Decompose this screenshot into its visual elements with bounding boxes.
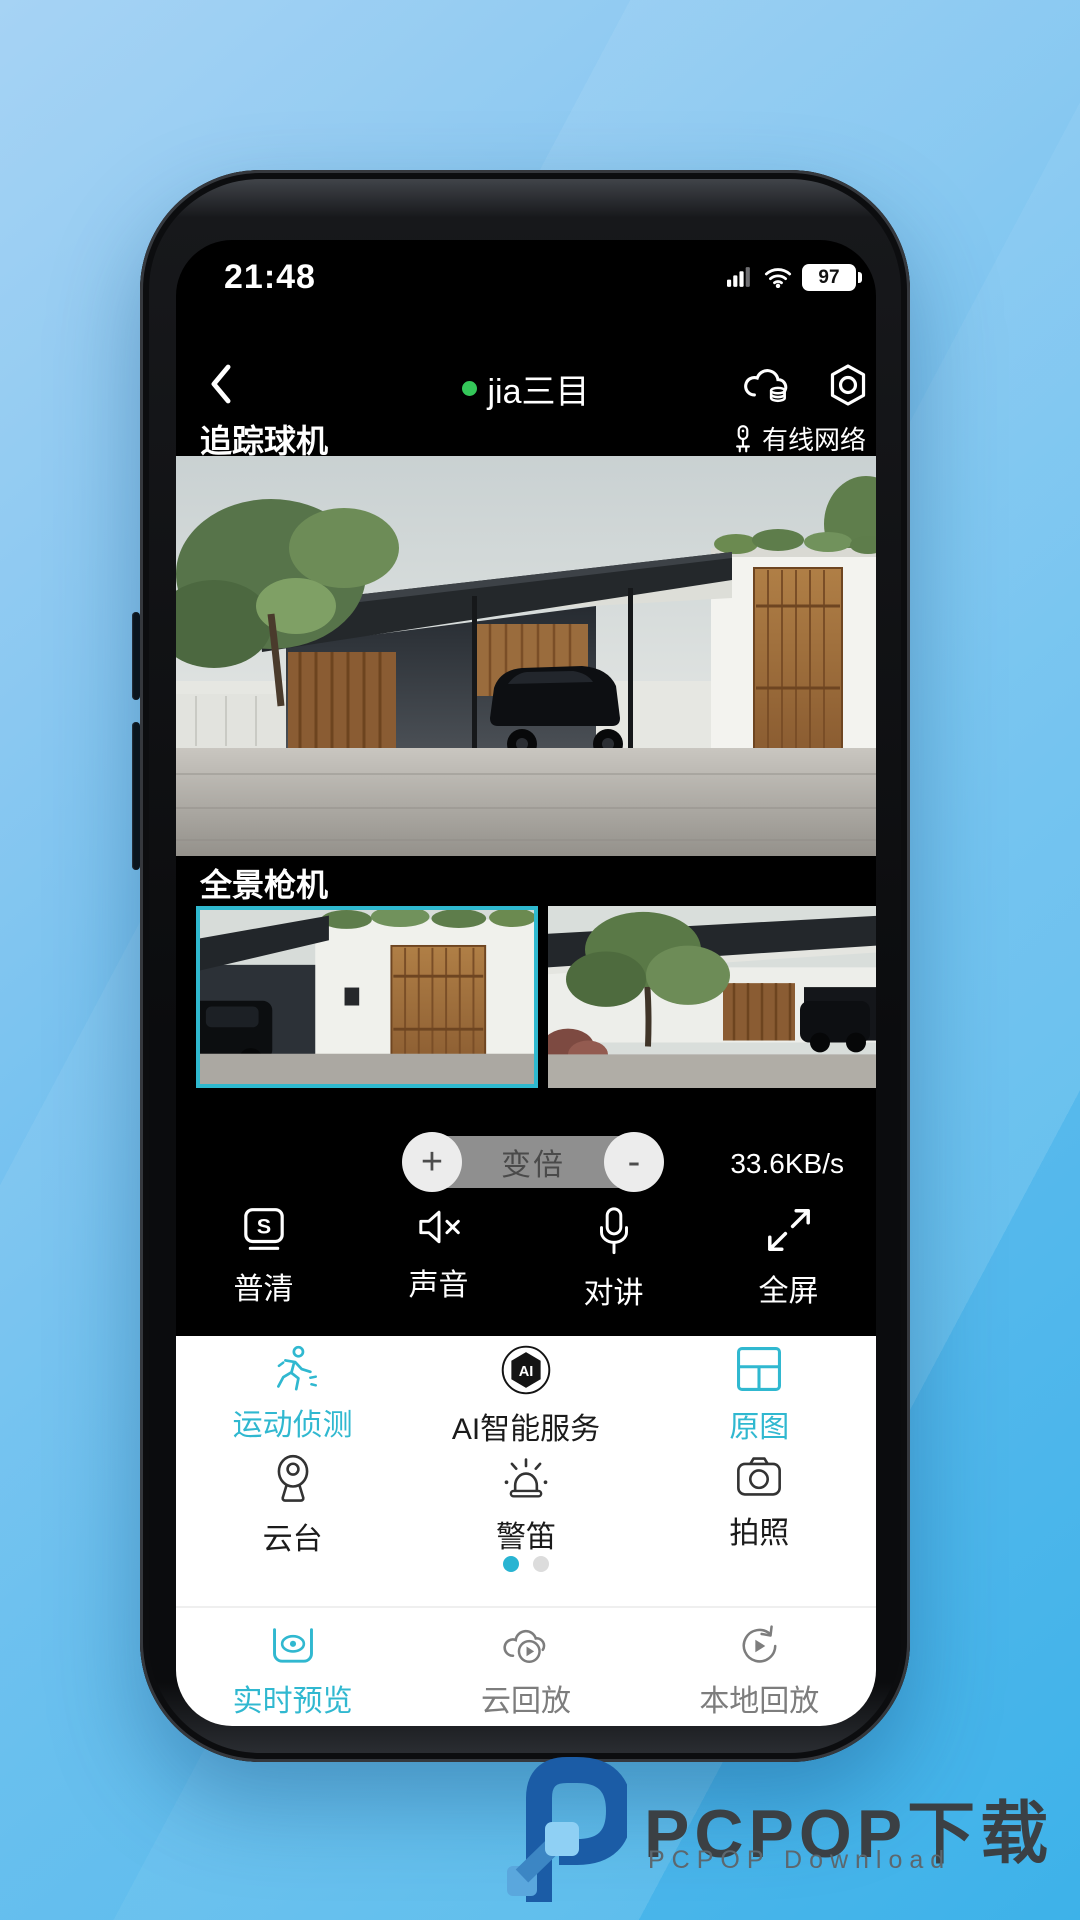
- bottom-tab-bar: 实时预览 云回放 本地回放: [176, 1624, 876, 1720]
- page-dot: [533, 1556, 549, 1572]
- motion-detect-button[interactable]: 运动侦测: [176, 1344, 409, 1448]
- svg-text:S: S: [256, 1214, 270, 1239]
- phone-volume-button: [132, 612, 140, 700]
- bitrate-value: 33.6KB/s: [730, 1148, 844, 1180]
- live-preview-icon: [268, 1624, 318, 1668]
- zoom-control: 变倍 + -: [410, 1136, 656, 1188]
- watermark-subtitle: PCPOP Download: [648, 1846, 951, 1875]
- tab-live-preview[interactable]: 实时预览: [176, 1624, 409, 1720]
- zoom-out-button[interactable]: -: [604, 1132, 664, 1192]
- wired-network-icon: [732, 424, 754, 454]
- network-status: 有线网络: [732, 420, 866, 457]
- quality-button[interactable]: S 普清: [176, 1206, 351, 1312]
- siren-icon: [500, 1454, 552, 1504]
- ptz-button[interactable]: 云台: [176, 1454, 409, 1558]
- tab-local-playback[interactable]: 本地回放: [643, 1624, 876, 1720]
- tabbar-divider: [176, 1606, 876, 1608]
- wifi-icon: [764, 267, 792, 288]
- page-background: 21:48 97 jia三目: [0, 0, 1080, 1920]
- settings-button[interactable]: [822, 360, 874, 410]
- panorama-thumb-left-video: [200, 910, 534, 1084]
- svg-text:AI: AI: [519, 1364, 534, 1380]
- sound-button[interactable]: 声音: [351, 1206, 526, 1312]
- feature-row-1: 运动侦测 AI AI智能服务 原图: [176, 1344, 876, 1448]
- battery-percent: 97: [818, 267, 839, 289]
- local-playback-icon: [735, 1624, 783, 1668]
- tracking-camera-view[interactable]: [176, 456, 876, 856]
- ai-service-button[interactable]: AI AI智能服务: [409, 1344, 642, 1448]
- sd-quality-icon: S: [239, 1206, 289, 1252]
- snapshot-button[interactable]: 拍照: [643, 1454, 876, 1558]
- fullscreen-icon: [765, 1206, 813, 1254]
- original-image-label: 原图: [729, 1402, 789, 1446]
- ptz-label: 云台: [263, 1514, 323, 1558]
- sound-label: 声音: [409, 1260, 469, 1304]
- panorama-thumbnail-selected[interactable]: [196, 906, 538, 1088]
- panorama-thumb-right-video: [548, 906, 876, 1088]
- status-icons: 97: [727, 264, 856, 291]
- cloud-playback-label: 云回放: [481, 1676, 571, 1720]
- cloud-storage-button[interactable]: [742, 360, 794, 410]
- speaker-muted-icon: [414, 1206, 464, 1248]
- quality-label: 普清: [234, 1264, 294, 1308]
- tab-cloud-playback[interactable]: 云回放: [409, 1624, 642, 1720]
- ai-service-label: AI智能服务: [452, 1404, 600, 1448]
- siren-button[interactable]: 警笛: [409, 1454, 642, 1558]
- gear-icon: [825, 361, 871, 409]
- page-indicator[interactable]: [176, 1556, 876, 1572]
- page-dot-active: [503, 1556, 519, 1572]
- live-preview-label: 实时预览: [233, 1676, 353, 1720]
- motion-detect-label: 运动侦测: [233, 1400, 353, 1444]
- pcpop-logo-icon: [505, 1752, 627, 1904]
- motion-detect-icon: [267, 1344, 319, 1392]
- microphone-icon: [593, 1206, 635, 1256]
- cloud-storage-icon: [742, 363, 794, 407]
- feature-row-2: 云台 警笛 拍照: [176, 1454, 876, 1558]
- ptz-camera-icon: [269, 1454, 317, 1506]
- zoom-in-button[interactable]: +: [402, 1132, 462, 1192]
- app-screen: 21:48 97 jia三目: [176, 240, 876, 1726]
- original-image-icon: [734, 1344, 784, 1394]
- status-time: 21:48: [224, 258, 316, 297]
- snapshot-camera-icon: [734, 1454, 784, 1500]
- fullscreen-label: 全屏: [759, 1266, 819, 1310]
- network-status-text: 有线网络: [762, 420, 866, 457]
- cloud-playback-icon: [500, 1624, 552, 1668]
- tracking-camera-video: [176, 456, 876, 856]
- fullscreen-button[interactable]: 全屏: [701, 1206, 876, 1312]
- battery-icon: 97: [802, 264, 856, 291]
- cellular-signal-icon: [727, 267, 754, 288]
- panorama-camera-label: 全景枪机: [200, 860, 328, 906]
- intercom-label: 对讲: [584, 1268, 644, 1312]
- device-name: jia三目: [487, 364, 589, 413]
- intercom-button[interactable]: 对讲: [526, 1206, 701, 1312]
- original-image-button[interactable]: 原图: [643, 1344, 876, 1448]
- local-playback-label: 本地回放: [699, 1676, 819, 1720]
- video-toolbar: S 普清 声音 对讲: [176, 1206, 876, 1312]
- phone-volume-button: [132, 722, 140, 870]
- siren-label: 警笛: [496, 1512, 556, 1556]
- snapshot-label: 拍照: [729, 1508, 789, 1552]
- panorama-thumbnail[interactable]: [548, 906, 876, 1088]
- ai-badge-icon: AI: [500, 1344, 552, 1396]
- online-status-dot: [462, 381, 477, 396]
